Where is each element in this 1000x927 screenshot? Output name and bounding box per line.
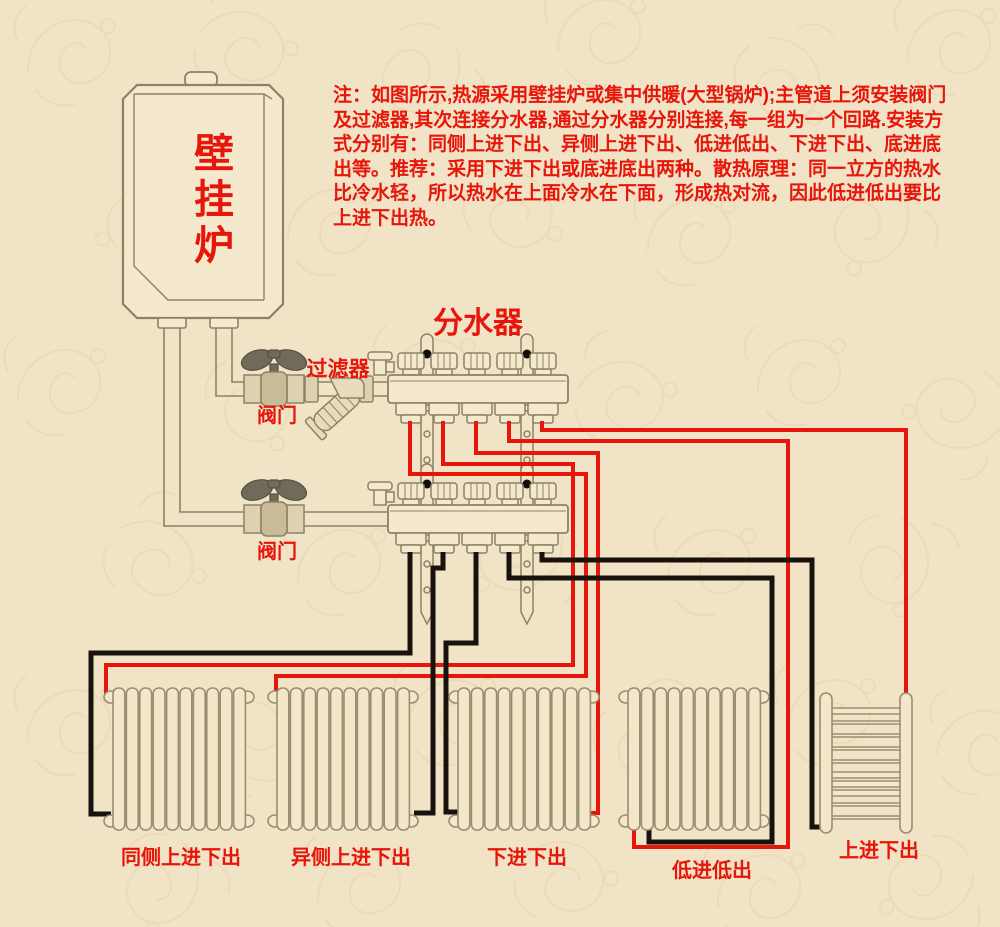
note-text: 注：如图所示,热源采用壁挂炉或集中供暖(大型锅炉);主管道上须安装阀门 及过滤器… [333, 84, 993, 232]
note-line: 注：如图所示,热源采用壁挂炉或集中供暖(大型锅炉);主管道上须安装阀门 [333, 84, 993, 109]
note-line: 比冷水轻，所以热水在上面冷水在下面，形成热对流，因此低进低出要比 [333, 182, 993, 207]
y-filter [305, 376, 373, 440]
radiator-5-towel [820, 693, 912, 833]
radiator-4 [619, 688, 769, 830]
ball-valve-top [239, 346, 309, 406]
radiator-2 [268, 688, 418, 830]
radiator-1 [104, 688, 254, 830]
boiler-outlets [158, 318, 238, 328]
note-line: 及过滤器,其次连接分水器,通过分水器分别连接,每一组为一个回路.安装方 [333, 109, 993, 134]
radiator-3-label: 下进下出 [487, 846, 567, 869]
radiator-4-label: 低进低出 [671, 858, 752, 882]
radiator-1-label: 同侧上进下出 [121, 845, 241, 869]
return-manifold [368, 464, 568, 624]
radiator-3 [449, 688, 599, 830]
valve-top-label: 阀门 [257, 403, 297, 427]
ball-valve-bottom [239, 476, 309, 536]
filter-label: 过滤器 [307, 357, 371, 381]
note-line: 式分别有：同侧上进下出、异侧上进下出、低进低出、下进下出、底进底 [333, 133, 993, 158]
supply-manifold [368, 334, 568, 494]
heating-diagram: 分水器 过滤器 阀门 阀门 同侧上进下出 异侧上进下出 下进下出 低进低出 上进… [0, 0, 1000, 927]
radiator-2-label: 异侧上进下出 [291, 845, 411, 869]
manifold-label: 分水器 [433, 307, 524, 340]
radiator-5-label: 上进下出 [839, 839, 919, 862]
note-line: 出等。推荐：采用下进下出或底进底出两种。散热原理：同一立方的热水 [333, 158, 993, 183]
boiler-label: 壁挂炉 [181, 132, 239, 270]
note-line: 上进下出热。 [333, 207, 993, 232]
valve-bottom-label: 阀门 [257, 539, 297, 563]
